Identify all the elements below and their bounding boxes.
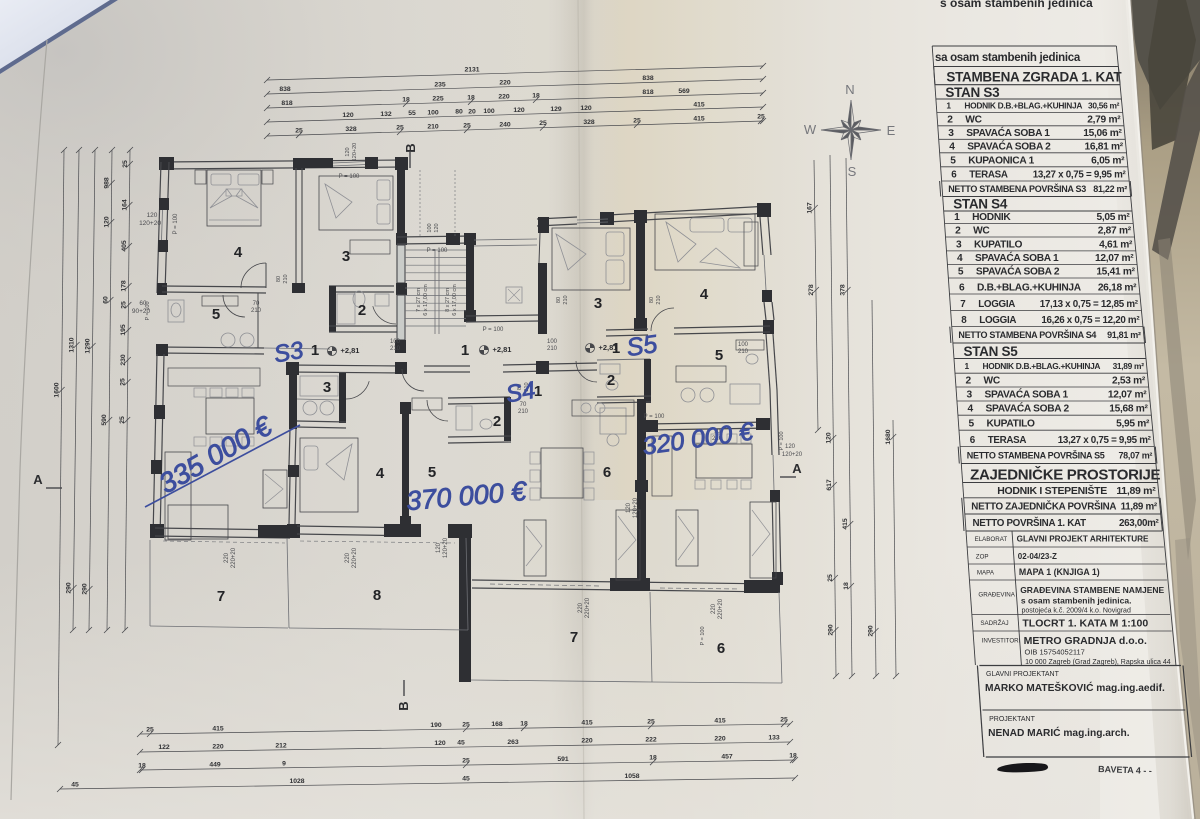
- svg-text:290: 290: [66, 582, 73, 594]
- svg-text:SPAVAĆA SOBA 1: SPAVAĆA SOBA 1: [966, 126, 1050, 139]
- svg-text:220: 220: [711, 603, 717, 614]
- svg-text:11,89 m²: 11,89 m²: [1116, 485, 1156, 497]
- svg-text:120: 120: [434, 223, 440, 232]
- svg-text:3: 3: [967, 390, 973, 401]
- svg-text:378: 378: [840, 284, 847, 296]
- svg-text:KUPATILO: KUPATILO: [974, 240, 1023, 251]
- svg-text:210: 210: [547, 346, 558, 352]
- svg-text:1: 1: [461, 342, 469, 359]
- svg-text:NETTO STAMBENA POVRŠINA S5: NETTO STAMBENA POVRŠINA S5: [967, 450, 1105, 461]
- svg-text:45: 45: [457, 740, 465, 747]
- svg-text:405: 405: [121, 240, 128, 252]
- svg-text:210: 210: [563, 295, 569, 304]
- svg-text:222: 222: [645, 737, 657, 744]
- svg-text:449: 449: [209, 761, 221, 768]
- svg-text:4: 4: [234, 244, 243, 261]
- svg-text:+2,81: +2,81: [341, 346, 360, 355]
- svg-text:240: 240: [499, 121, 511, 128]
- svg-text:30,56 m²: 30,56 m²: [1088, 101, 1120, 111]
- svg-text:5: 5: [958, 267, 964, 278]
- svg-text:WC: WC: [965, 115, 982, 126]
- svg-text:S4: S4: [504, 377, 538, 409]
- svg-text:S5: S5: [625, 330, 659, 362]
- svg-text:129: 129: [550, 106, 562, 113]
- svg-text:7: 7: [960, 299, 966, 310]
- svg-text:ELABORAT: ELABORAT: [975, 536, 1008, 543]
- svg-text:1058: 1058: [624, 773, 639, 780]
- svg-text:31,89 m²: 31,89 m²: [1113, 361, 1145, 371]
- svg-text:1310: 1310: [69, 337, 76, 352]
- svg-text:133: 133: [768, 735, 780, 742]
- svg-text:4,61 m²: 4,61 m²: [1099, 240, 1133, 251]
- svg-text:+2,81: +2,81: [493, 345, 512, 354]
- svg-text:SADRŽAJ: SADRŽAJ: [980, 619, 1008, 627]
- svg-text:2,53 m²: 2,53 m²: [1112, 376, 1146, 387]
- svg-text:GRAĐEVINA STAMBENE NAMJENE: GRAĐEVINA STAMBENE NAMJENE: [1020, 585, 1164, 595]
- svg-text:2: 2: [607, 372, 615, 389]
- svg-text:TLOCRT 1. KATA M 1:100: TLOCRT 1. KATA M 1:100: [1022, 618, 1148, 630]
- svg-text:18: 18: [532, 92, 540, 99]
- svg-text:16,81 m²: 16,81 m²: [1085, 142, 1124, 153]
- svg-text:12,07 m²: 12,07 m²: [1108, 390, 1147, 401]
- svg-text:INVESTITORI: INVESTITORI: [982, 637, 1021, 644]
- svg-text:3: 3: [594, 295, 602, 312]
- svg-text:25: 25: [146, 726, 154, 733]
- svg-text:210: 210: [738, 349, 749, 355]
- svg-text:120+20: 120+20: [782, 452, 803, 458]
- svg-text:168: 168: [491, 721, 503, 728]
- svg-text:178: 178: [121, 280, 128, 292]
- svg-text:2: 2: [955, 226, 961, 237]
- svg-text:220+20: 220+20: [231, 547, 237, 568]
- svg-text:18: 18: [520, 721, 528, 728]
- svg-text:7: 7: [217, 588, 225, 605]
- svg-text:988: 988: [104, 177, 111, 189]
- svg-text:WC: WC: [973, 226, 990, 237]
- svg-text:328: 328: [345, 126, 357, 133]
- svg-text:HODNIK I STEPENIŠTE: HODNIK I STEPENIŠTE: [997, 484, 1107, 497]
- svg-text:SPAVAĆA SOBA 1: SPAVAĆA SOBA 1: [975, 251, 1059, 264]
- svg-text:120+20: 120+20: [443, 537, 449, 558]
- svg-text:HODNIK D.B.+BLAG.+KUHINJA: HODNIK D.B.+BLAG.+KUHINJA: [964, 101, 1082, 111]
- svg-text:SPAVAĆA SOBA 2: SPAVAĆA SOBA 2: [967, 140, 1051, 153]
- svg-text:6 x 17,00 cm: 6 x 17,00 cm: [423, 284, 429, 316]
- svg-text:3: 3: [342, 248, 350, 265]
- svg-text:2: 2: [493, 413, 501, 430]
- svg-text:167: 167: [807, 202, 814, 214]
- svg-text:220: 220: [498, 93, 510, 100]
- svg-text:25: 25: [757, 114, 765, 121]
- svg-text:8: 8: [373, 587, 381, 604]
- svg-text:NETTO STAMBENA POVRŠINA S3: NETTO STAMBENA POVRŠINA S3: [948, 183, 1086, 194]
- svg-text:220+20: 220+20: [352, 547, 358, 568]
- svg-text:164: 164: [121, 199, 128, 211]
- svg-text:4: 4: [700, 286, 709, 303]
- svg-text:120+20: 120+20: [139, 220, 161, 227]
- svg-text:P = 100: P = 100: [145, 301, 151, 320]
- svg-text:NETTO STAMBENA POVRŠINA S4: NETTO STAMBENA POVRŠINA S4: [958, 329, 1096, 340]
- svg-text:KUPAONICA 1: KUPAONICA 1: [968, 156, 1034, 167]
- svg-text:5: 5: [715, 347, 723, 364]
- svg-text:818: 818: [281, 100, 293, 107]
- svg-text:235: 235: [434, 81, 446, 88]
- svg-text:15,06 m²: 15,06 m²: [1083, 128, 1122, 139]
- svg-text:122: 122: [158, 744, 170, 751]
- svg-text:5,95 m²: 5,95 m²: [1116, 419, 1150, 430]
- svg-text:6: 6: [951, 170, 957, 181]
- svg-text:617: 617: [826, 479, 833, 491]
- svg-text:GRAĐEVINA: GRAĐEVINA: [978, 591, 1015, 598]
- svg-text:91,81 m²: 91,81 m²: [1107, 330, 1141, 340]
- svg-text:7: 7: [570, 629, 578, 646]
- svg-text:A: A: [792, 461, 802, 476]
- svg-text:290: 290: [827, 624, 834, 636]
- svg-text:BAVETA 4 - -: BAVETA 4 - -: [1098, 764, 1152, 776]
- svg-text:120: 120: [345, 147, 351, 156]
- svg-text:9: 9: [282, 760, 286, 767]
- svg-text:80: 80: [649, 297, 655, 303]
- svg-text:STAN S4: STAN S4: [953, 196, 1008, 211]
- svg-text:P = 100: P = 100: [483, 327, 504, 333]
- svg-text:120+20: 120+20: [352, 143, 358, 162]
- svg-text:+2,81: +2,81: [599, 343, 618, 352]
- svg-text:2: 2: [947, 115, 953, 126]
- svg-text:290: 290: [868, 625, 875, 637]
- svg-text:12,07 m²: 12,07 m²: [1095, 253, 1134, 264]
- svg-text:13,27 x 0,75 = 9,95 m²: 13,27 x 0,75 = 9,95 m²: [1033, 170, 1127, 181]
- svg-text:6 x 17,00 cm: 6 x 17,00 cm: [452, 284, 458, 316]
- svg-text:220+20: 220+20: [585, 597, 591, 618]
- svg-text:25: 25: [463, 122, 471, 129]
- svg-text:GLAVNI PROJEKT ARHITEKTURE: GLAVNI PROJEKT ARHITEKTURE: [1017, 535, 1149, 544]
- svg-text:HODNIK: HODNIK: [972, 212, 1011, 223]
- svg-text:838: 838: [279, 86, 291, 93]
- svg-text:18: 18: [138, 762, 146, 769]
- svg-text:25: 25: [633, 117, 641, 124]
- svg-text:SPAVAĆA SOBA 2: SPAVAĆA SOBA 2: [976, 265, 1060, 278]
- svg-text:6,05 m²: 6,05 m²: [1091, 156, 1125, 167]
- svg-text:NENAD MARIĆ mag.ing.arch.: NENAD MARIĆ mag.ing.arch.: [988, 726, 1130, 739]
- svg-text:120: 120: [580, 105, 592, 112]
- svg-text:415: 415: [212, 725, 224, 732]
- svg-text:70: 70: [253, 301, 260, 307]
- svg-text:210: 210: [283, 274, 289, 283]
- svg-text:4: 4: [957, 253, 963, 264]
- svg-text:220: 220: [224, 552, 230, 563]
- svg-text:E: E: [887, 123, 896, 138]
- svg-text:100: 100: [547, 339, 558, 345]
- svg-text:STAN S3: STAN S3: [945, 85, 1000, 100]
- svg-text:220+20: 220+20: [718, 598, 724, 619]
- svg-text:2,79 m²: 2,79 m²: [1087, 115, 1121, 126]
- svg-text:230: 230: [120, 354, 127, 366]
- svg-text:1: 1: [311, 342, 319, 359]
- svg-text:18: 18: [402, 96, 410, 103]
- svg-text:838: 838: [642, 75, 654, 82]
- svg-text:415: 415: [693, 101, 705, 108]
- svg-text:210: 210: [518, 409, 529, 415]
- svg-text:26,18 m²: 26,18 m²: [1098, 283, 1137, 294]
- svg-text:A: A: [33, 472, 43, 487]
- svg-text:postojeća k.č. 2009/4 k.o. Nov: postojeća k.č. 2009/4 k.o. Novigrad: [1022, 608, 1131, 615]
- svg-text:2131: 2131: [464, 67, 479, 74]
- svg-text:120: 120: [825, 432, 832, 444]
- svg-text:210: 210: [251, 308, 262, 314]
- svg-text:MAPA 1 (KNJIGA 1): MAPA 1 (KNJIGA 1): [1019, 567, 1100, 577]
- svg-text:18: 18: [649, 755, 657, 762]
- svg-text:210: 210: [427, 123, 439, 130]
- svg-text:P = 100: P = 100: [173, 213, 179, 234]
- svg-text:415: 415: [581, 720, 593, 727]
- svg-text:120: 120: [626, 502, 632, 513]
- svg-text:25: 25: [539, 120, 547, 127]
- svg-text:132: 132: [380, 111, 392, 118]
- svg-text:25: 25: [780, 717, 788, 724]
- svg-text:225: 225: [432, 95, 444, 102]
- svg-text:4: 4: [949, 142, 955, 153]
- svg-text:TERASA: TERASA: [988, 435, 1027, 446]
- svg-text:220: 220: [499, 79, 511, 86]
- svg-text:8: 8: [961, 315, 967, 326]
- svg-text:80: 80: [276, 276, 282, 282]
- svg-text:OIB 15754052117: OIB 15754052117: [1025, 648, 1085, 657]
- svg-text:120: 120: [434, 740, 446, 747]
- svg-text:SPAVAĆA SOBA 1: SPAVAĆA SOBA 1: [985, 388, 1069, 401]
- svg-text:212: 212: [275, 742, 287, 749]
- svg-text:ZAJEDNIČKE PROSTORIJE: ZAJEDNIČKE PROSTORIJE: [970, 465, 1160, 483]
- svg-text:1290: 1290: [85, 338, 92, 353]
- svg-text:METRO GRADNJA d.o.o.: METRO GRADNJA d.o.o.: [1024, 635, 1147, 647]
- svg-text:290: 290: [82, 583, 89, 595]
- svg-text:1: 1: [954, 212, 960, 223]
- svg-text:78,07 m²: 78,07 m²: [1118, 451, 1152, 461]
- svg-text:25: 25: [462, 758, 470, 765]
- svg-text:80: 80: [455, 109, 463, 116]
- svg-text:18: 18: [789, 753, 797, 760]
- svg-text:569: 569: [678, 88, 690, 95]
- svg-text:1: 1: [965, 361, 970, 371]
- svg-text:263: 263: [507, 739, 519, 746]
- svg-text:120: 120: [436, 542, 442, 553]
- svg-text:195: 195: [120, 324, 127, 336]
- svg-text:16,26 x 0,75 = 12,20 m²: 16,26 x 0,75 = 12,20 m²: [1041, 315, 1140, 326]
- svg-text:SPAVAĆA SOBA 2: SPAVAĆA SOBA 2: [986, 402, 1070, 415]
- svg-text:220: 220: [578, 602, 584, 613]
- svg-text:LOGGIA: LOGGIA: [979, 315, 1016, 326]
- svg-text:4: 4: [376, 465, 385, 482]
- svg-text:NETTO POVRŠINA 1. KAT: NETTO POVRŠINA 1. KAT: [973, 517, 1087, 529]
- svg-text:591: 591: [557, 756, 569, 763]
- svg-text:2: 2: [966, 376, 972, 387]
- svg-text:sa osam stambenih jedinica: sa osam stambenih jedinica: [935, 52, 1081, 64]
- svg-text:45: 45: [462, 775, 470, 782]
- svg-text:KUPATILO: KUPATILO: [987, 419, 1036, 430]
- svg-text:6: 6: [970, 435, 976, 446]
- svg-text:D.B.+BLAG.+KUHINJA: D.B.+BLAG.+KUHINJA: [977, 283, 1082, 294]
- svg-text:120: 120: [147, 212, 158, 219]
- svg-text:328: 328: [583, 119, 595, 126]
- svg-text:5,05 m²: 5,05 m²: [1096, 212, 1130, 223]
- svg-text:1028: 1028: [289, 778, 304, 785]
- svg-text:3: 3: [956, 240, 962, 251]
- svg-text:11,89 m²: 11,89 m²: [1121, 501, 1158, 512]
- svg-text:3: 3: [948, 128, 954, 139]
- svg-text:415: 415: [842, 518, 849, 530]
- svg-text:P = 100: P = 100: [427, 248, 448, 254]
- svg-text:120+20: 120+20: [633, 497, 639, 518]
- svg-text:20: 20: [468, 108, 476, 115]
- svg-text:80: 80: [556, 297, 562, 303]
- svg-text:220: 220: [345, 552, 351, 563]
- svg-text:MARKO MATEŠKOVIĆ mag.ing.aedif: MARKO MATEŠKOVIĆ mag.ing.aedif.: [985, 681, 1165, 694]
- svg-text:190: 190: [430, 722, 442, 729]
- svg-text:25: 25: [647, 719, 655, 726]
- svg-text:55: 55: [408, 110, 416, 117]
- svg-text:STAN S5: STAN S5: [964, 344, 1019, 359]
- svg-text:45: 45: [71, 781, 79, 788]
- svg-text:1600: 1600: [54, 382, 61, 397]
- svg-text:N: N: [845, 82, 854, 97]
- svg-text:6: 6: [603, 464, 611, 481]
- svg-text:B: B: [396, 701, 411, 710]
- svg-text:P = 100: P = 100: [779, 431, 785, 450]
- svg-text:120: 120: [785, 444, 796, 450]
- svg-text:100: 100: [390, 339, 401, 345]
- svg-text:5: 5: [950, 156, 956, 167]
- svg-text:15,68 m²: 15,68 m²: [1109, 404, 1148, 415]
- svg-text:18: 18: [467, 94, 475, 101]
- svg-text:S: S: [848, 164, 857, 179]
- svg-text:263,00m²: 263,00m²: [1119, 518, 1160, 529]
- svg-text:590: 590: [101, 414, 108, 426]
- svg-text:100: 100: [483, 108, 495, 115]
- svg-text:220: 220: [714, 736, 726, 743]
- svg-text:100: 100: [427, 223, 433, 232]
- svg-text:2,87 m²: 2,87 m²: [1098, 226, 1132, 237]
- svg-text:13,27 x 0,75 = 9,95 m²: 13,27 x 0,75 = 9,95 m²: [1058, 435, 1152, 446]
- svg-text:MAPA: MAPA: [977, 569, 995, 576]
- svg-text:100: 100: [738, 342, 749, 348]
- svg-text:415: 415: [693, 115, 705, 122]
- svg-text:220: 220: [212, 743, 224, 750]
- svg-text:LOGGIA: LOGGIA: [978, 299, 1015, 310]
- svg-text:NETTO ZAJEDNIČKA POVRŠINA: NETTO ZAJEDNIČKA POVRŠINA: [971, 500, 1116, 512]
- svg-text:81,22 m²: 81,22 m²: [1093, 184, 1127, 194]
- svg-text:818: 818: [642, 89, 654, 96]
- svg-text:15,41 m²: 15,41 m²: [1096, 267, 1135, 278]
- svg-text:TERASA: TERASA: [969, 170, 1008, 181]
- svg-text:s osam stambenih jedinica.: s osam stambenih jedinica.: [1021, 596, 1132, 606]
- svg-text:1680: 1680: [885, 429, 892, 444]
- svg-text:210: 210: [390, 346, 401, 352]
- svg-text:S3: S3: [272, 337, 306, 369]
- svg-text:3: 3: [323, 379, 331, 396]
- svg-text:HODNIK D.B.+BLAG.+KUHINJA: HODNIK D.B.+BLAG.+KUHINJA: [983, 361, 1101, 371]
- svg-text:120: 120: [103, 216, 110, 228]
- svg-text:5: 5: [969, 419, 975, 430]
- svg-text:8 x 27 cm: 8 x 27 cm: [445, 288, 451, 312]
- svg-text:P = 100: P = 100: [339, 174, 360, 180]
- svg-text:STAMBENA ZGRADA 1. KAT: STAMBENA ZGRADA 1. KAT: [946, 69, 1122, 84]
- svg-text:6: 6: [959, 283, 965, 294]
- svg-text:2: 2: [358, 302, 366, 319]
- svg-text:s osam stambenih jedinica: s osam stambenih jedinica: [940, 0, 1093, 10]
- svg-text:7 x 27 cm: 7 x 27 cm: [416, 288, 422, 312]
- svg-text:WC: WC: [984, 376, 1001, 387]
- svg-text:25: 25: [295, 128, 303, 135]
- svg-text:4: 4: [968, 404, 974, 415]
- svg-text:17,13 x 0,75 = 12,85 m²: 17,13 x 0,75 = 12,85 m²: [1040, 299, 1139, 310]
- svg-text:120: 120: [513, 107, 525, 114]
- svg-text:5: 5: [428, 464, 436, 481]
- svg-text:02-04/23-Z: 02-04/23-Z: [1018, 552, 1057, 561]
- svg-text:6: 6: [717, 640, 725, 657]
- svg-text:100: 100: [427, 109, 439, 116]
- svg-text:ZOP: ZOP: [976, 553, 989, 560]
- svg-text:PROJEKTANT: PROJEKTANT: [989, 716, 1035, 723]
- svg-text:P = 100: P = 100: [644, 414, 665, 420]
- svg-text:120: 120: [342, 112, 354, 119]
- svg-text:220: 220: [581, 738, 593, 745]
- svg-text:278: 278: [808, 284, 815, 296]
- svg-text:P = 100: P = 100: [700, 626, 706, 645]
- svg-text:25: 25: [462, 721, 470, 728]
- svg-text:25: 25: [396, 124, 404, 131]
- svg-text:1: 1: [946, 101, 951, 111]
- svg-text:B: B: [403, 143, 418, 152]
- svg-text:W: W: [804, 122, 817, 137]
- svg-text:457: 457: [721, 754, 733, 761]
- svg-text:GLAVNI PROJEKTANT: GLAVNI PROJEKTANT: [986, 671, 1060, 678]
- svg-text:415: 415: [714, 718, 726, 725]
- svg-text:210: 210: [656, 295, 662, 304]
- svg-text:5: 5: [212, 306, 220, 323]
